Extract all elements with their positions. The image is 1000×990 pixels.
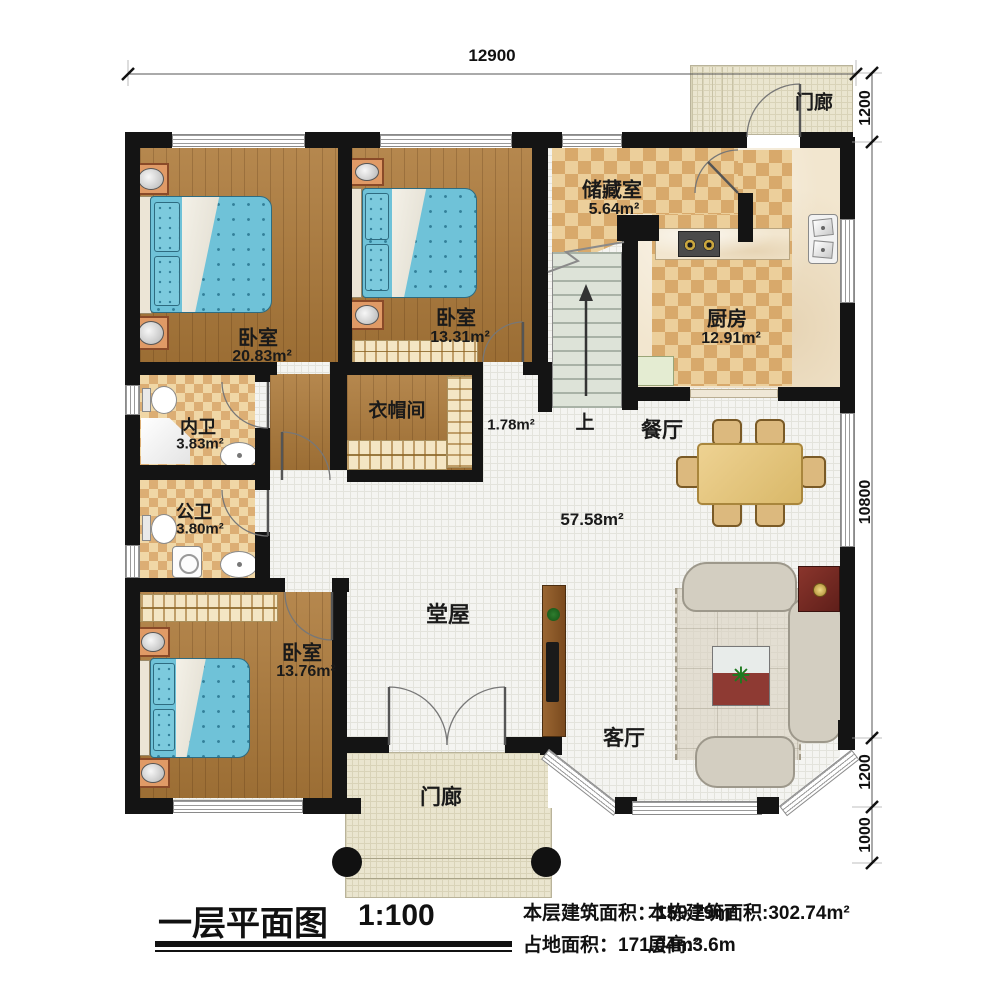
cloakroom-wardrobe-right (447, 376, 473, 468)
lamp-icon (355, 163, 379, 181)
window (840, 413, 855, 547)
porch-bottom-step-line (346, 858, 551, 859)
wall (622, 132, 692, 148)
bed-pillow (153, 709, 175, 751)
room-label-living: 客厅 (603, 722, 645, 752)
window (172, 134, 305, 147)
kitchen-sink (808, 214, 838, 264)
toilet-tank (142, 388, 151, 412)
wall (838, 720, 855, 750)
nightstand (136, 758, 170, 788)
plant-icon (547, 608, 560, 621)
wall (347, 737, 389, 753)
room-label-bedroom3: 卧室 (282, 637, 322, 666)
room-label-kitchen: 厨房 (707, 303, 747, 332)
floor-plan: ✳ (0, 0, 1000, 990)
sofa-right (788, 598, 842, 743)
stat-building-area-value: 302.74m² (768, 903, 849, 924)
window (125, 545, 140, 578)
bay-window-center (632, 801, 762, 815)
stat-storey-height-label: 层高: (648, 935, 692, 956)
bed-pillow (154, 202, 180, 252)
porch-column-right (531, 847, 561, 877)
lamp-icon (355, 305, 379, 325)
wall (532, 148, 548, 362)
wall (349, 362, 483, 375)
wall (125, 415, 140, 545)
bed-pillow (365, 193, 389, 240)
room-label-porch-bottom: 门廊 (420, 781, 462, 811)
room-area-public-bath: 3.80m² (176, 521, 224, 538)
stat-building-area: 本栋建筑面积:302.74m² (648, 898, 850, 925)
plant-icon: ✳ (732, 663, 750, 689)
wall (472, 374, 483, 472)
dim-right-bay: 1200 (857, 754, 875, 790)
wall (330, 374, 347, 470)
wall (757, 797, 779, 814)
kitchen-threshold (690, 389, 778, 398)
wall (538, 362, 552, 412)
cloakroom-wardrobe-bottom (335, 440, 447, 470)
room-area-bedroom3: 13.76m² (276, 663, 336, 681)
sink-basin (812, 240, 833, 259)
burner-icon (703, 239, 715, 251)
lamp-icon (138, 321, 164, 345)
window (173, 800, 303, 813)
stat-floor-area-label: 本层建筑面积： (523, 903, 656, 924)
room-area-hall: 57.58m² (560, 510, 623, 530)
bed-pillow (365, 244, 389, 291)
stat-storey-height-value: 3.6m (692, 935, 735, 956)
wall (738, 193, 753, 242)
dim-right-main: 10800 (857, 480, 875, 525)
room-label-storage: 储藏室 (582, 174, 642, 203)
stat-storey-height: 层高:3.6m (648, 930, 736, 957)
bed-pillow (153, 663, 175, 705)
bedroom3-wardrobe (140, 594, 278, 622)
room-area-bedroom2: 13.31m² (430, 329, 490, 347)
title-underline-thin (155, 950, 512, 952)
burner-icon (684, 239, 696, 251)
stove (678, 231, 720, 257)
wall (332, 578, 349, 592)
lamp-icon (141, 763, 165, 783)
sink-basin (812, 218, 834, 237)
dining-chair (800, 456, 826, 488)
window (840, 219, 855, 303)
room-label-bedroom2: 卧室 (436, 302, 476, 331)
wall (338, 148, 352, 362)
room-area-kitchen: 12.91m² (701, 330, 761, 348)
stairs-up-label: 上 (575, 408, 594, 435)
toilet-tank (142, 515, 151, 541)
nightstand (136, 627, 170, 657)
room-label-porch-top: 门廊 (795, 88, 833, 115)
porch-bottom-step-line2 (346, 878, 551, 879)
room-label-bedroom1: 卧室 (238, 322, 278, 351)
stat-footprint-label: 占地面积： (523, 935, 618, 956)
wall (125, 132, 140, 385)
window (125, 385, 140, 415)
knob-icon (813, 583, 827, 597)
side-console (798, 566, 840, 612)
wall (840, 303, 855, 413)
porch-top-steps (692, 67, 742, 133)
washing-machine (172, 546, 202, 578)
dining-chair (755, 419, 785, 446)
wall (255, 375, 270, 382)
toilet (151, 386, 177, 414)
wall (840, 547, 855, 737)
wall (347, 470, 483, 482)
wall (622, 387, 690, 401)
lamp-icon (141, 632, 165, 652)
plan-title: 一层平面图 (158, 896, 328, 945)
sofa-top (682, 562, 797, 612)
dining-chair (712, 419, 742, 446)
staircase (552, 252, 622, 408)
wall (125, 578, 285, 592)
porch-bottom-floor (345, 752, 552, 898)
plan-scale: 1:100 (358, 899, 435, 933)
wall (125, 465, 270, 480)
title-underline (155, 941, 512, 947)
window (380, 134, 512, 147)
bathroom-sink (220, 551, 258, 578)
vestibule-floor (270, 374, 330, 470)
room-area-nook: 1.78m² (487, 417, 535, 434)
kitchen-counter (655, 228, 790, 260)
dining-table (697, 443, 803, 505)
wall (692, 132, 747, 148)
wall (255, 428, 270, 490)
dim-right-porch-top: 1200 (857, 90, 875, 126)
bed-pillow (154, 256, 180, 306)
nightstand (350, 158, 384, 186)
nightstand (350, 300, 384, 330)
room-label-hall: 堂屋 (426, 597, 470, 629)
sofa-bottom (695, 736, 795, 788)
wall (332, 592, 347, 814)
dim-top-width: 12900 (468, 46, 515, 66)
room-area-inner-bath: 3.83m² (176, 436, 224, 453)
wall (778, 387, 840, 401)
wall (305, 132, 380, 148)
toilet (151, 514, 177, 544)
window (562, 134, 622, 147)
lamp-icon (138, 168, 164, 190)
wall (512, 132, 562, 148)
stat-building-area-label: 本栋建筑面积: (648, 903, 768, 924)
room-label-dining: 餐厅 (641, 414, 683, 444)
wall (125, 578, 140, 814)
wall (622, 240, 638, 410)
room-area-storage: 5.64m² (589, 201, 640, 219)
wall (840, 137, 855, 219)
room-label-cloakroom: 衣帽间 (368, 396, 425, 423)
wall (125, 798, 173, 814)
tv (546, 642, 559, 702)
room-area-bedroom1: 20.83m² (232, 348, 292, 366)
porch-column-left (332, 847, 362, 877)
dim-right-porch-bottom: 1000 (857, 817, 875, 853)
